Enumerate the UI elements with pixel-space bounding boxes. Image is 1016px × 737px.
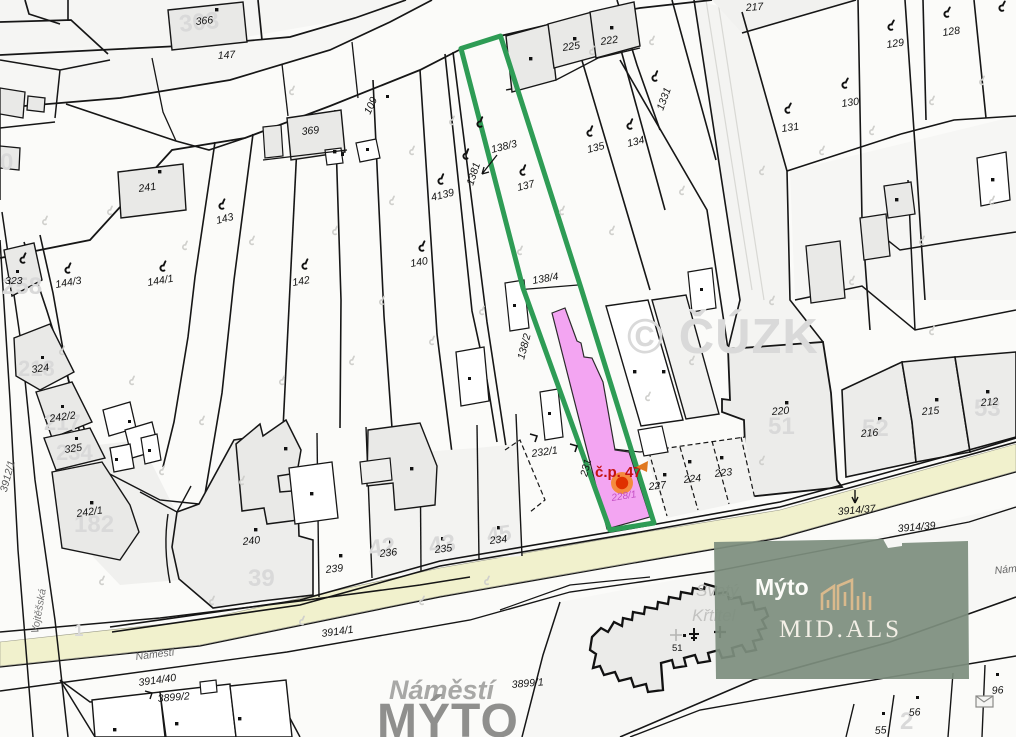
svg-text:51: 51	[672, 643, 683, 654]
svg-text:130: 130	[841, 96, 860, 110]
svg-text:369: 369	[301, 124, 320, 138]
svg-text:324: 324	[31, 362, 50, 376]
svg-text:323: 323	[5, 275, 23, 287]
svg-text:0: 0	[0, 149, 13, 176]
svg-text:236: 236	[378, 546, 398, 560]
svg-text:215: 215	[920, 405, 939, 418]
svg-text:235: 235	[433, 542, 453, 556]
svg-text:227: 227	[647, 479, 668, 493]
svg-text:239: 239	[324, 562, 344, 576]
svg-text:212: 212	[979, 396, 998, 409]
svg-text:č.p. 47: č.p. 47	[595, 464, 642, 481]
svg-text:39: 39	[248, 565, 275, 592]
svg-text:240: 240	[241, 534, 261, 548]
svg-text:MÝTO: MÝTO	[377, 694, 519, 737]
svg-text:216: 216	[859, 427, 878, 440]
svg-text:224: 224	[682, 472, 702, 486]
svg-text:MID.ALS: MID.ALS	[779, 616, 902, 643]
svg-text:© ČÚZK: © ČÚZK	[627, 309, 819, 364]
svg-text:217: 217	[744, 1, 764, 14]
svg-text:223: 223	[713, 466, 733, 480]
svg-text:56: 56	[908, 706, 921, 719]
svg-text:96: 96	[991, 684, 1004, 697]
svg-text:366: 366	[195, 14, 214, 28]
svg-text:1: 1	[74, 621, 83, 640]
svg-text:234: 234	[488, 533, 508, 547]
svg-text:220: 220	[770, 405, 789, 418]
svg-text:147: 147	[217, 49, 236, 62]
svg-text:241: 241	[137, 181, 157, 195]
svg-text:129: 129	[886, 37, 905, 51]
svg-text:128: 128	[942, 25, 961, 39]
svg-text:Mýto: Mýto	[755, 574, 809, 600]
svg-text:325: 325	[64, 442, 83, 456]
svg-text:55: 55	[874, 724, 887, 737]
svg-text:131: 131	[781, 121, 800, 135]
